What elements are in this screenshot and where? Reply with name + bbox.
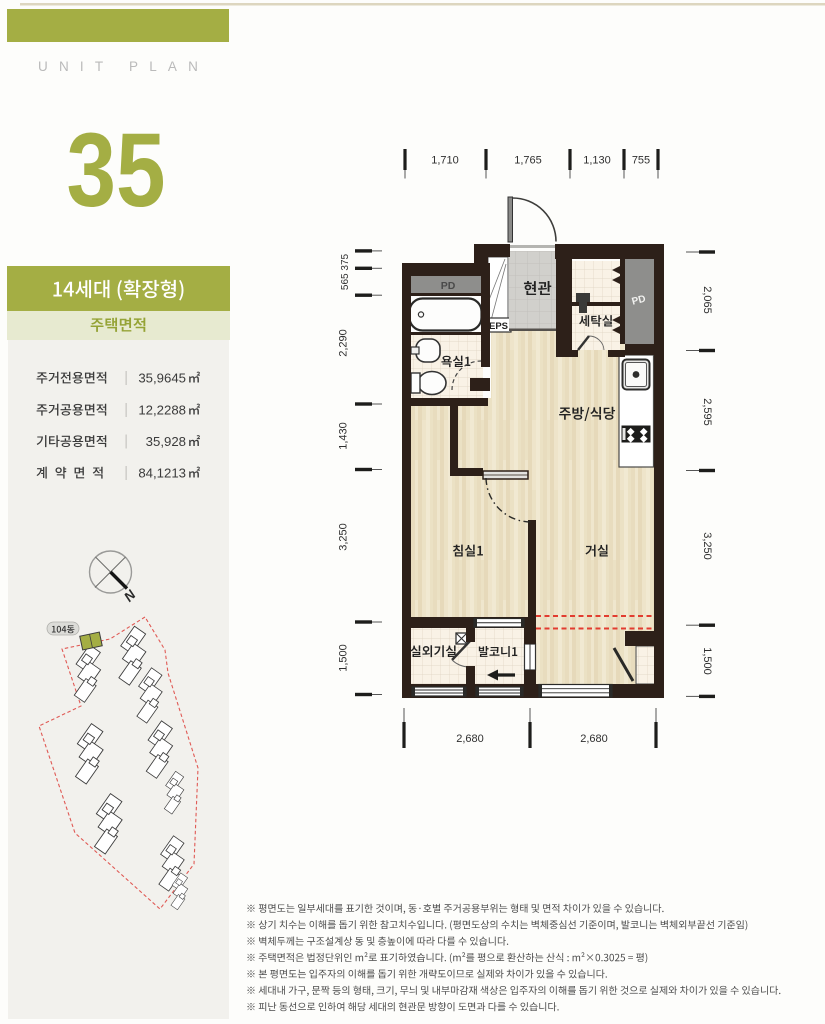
- svg-text:1,710: 1,710: [431, 155, 459, 167]
- svg-text:3,250: 3,250: [338, 523, 350, 551]
- svg-text:2,290: 2,290: [338, 329, 350, 357]
- svg-text:PD: PD: [441, 280, 456, 292]
- svg-text:2,680: 2,680: [456, 733, 484, 745]
- svg-text:UNIT PLAN: UNIT PLAN: [38, 59, 209, 74]
- svg-text:35,9645: 35,9645: [138, 371, 186, 386]
- svg-text:EPS: EPS: [489, 321, 508, 332]
- svg-text:2,680: 2,680: [580, 733, 608, 745]
- svg-text:2,595: 2,595: [701, 398, 713, 426]
- svg-text:755: 755: [632, 155, 650, 167]
- svg-text:35: 35: [67, 112, 166, 229]
- svg-text:1,430: 1,430: [338, 422, 350, 450]
- svg-text:2,065: 2,065: [701, 286, 713, 314]
- svg-text:12,2288: 12,2288: [138, 403, 186, 418]
- svg-text:35,928: 35,928: [146, 434, 186, 449]
- svg-text:3,250: 3,250: [701, 532, 713, 560]
- svg-text:84,1213: 84,1213: [138, 466, 186, 481]
- svg-text:1,500: 1,500: [338, 644, 350, 672]
- svg-text:1,765: 1,765: [514, 155, 542, 167]
- svg-text:565 375: 565 375: [340, 253, 351, 290]
- svg-text:1,500: 1,500: [701, 647, 713, 675]
- svg-text:1,130: 1,130: [583, 155, 611, 167]
